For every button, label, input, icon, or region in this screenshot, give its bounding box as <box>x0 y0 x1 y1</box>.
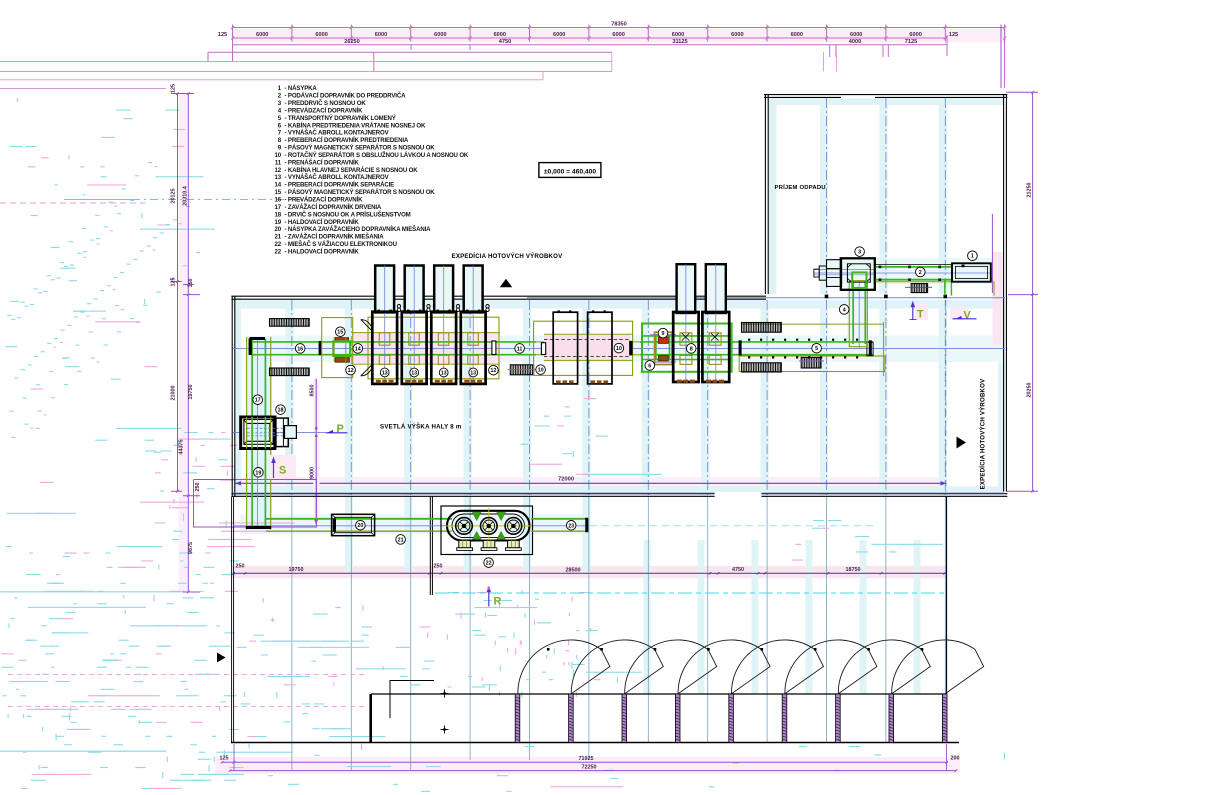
svg-text:8: 8 <box>690 346 693 352</box>
svg-text:22: 22 <box>275 248 282 255</box>
svg-text:150: 150 <box>188 279 194 288</box>
svg-text:6000: 6000 <box>909 32 921 38</box>
svg-text:4000: 4000 <box>849 39 861 45</box>
svg-text:125: 125 <box>218 32 227 38</box>
svg-text:28500: 28500 <box>566 568 581 574</box>
svg-text:31125: 31125 <box>672 39 687 45</box>
svg-text:13: 13 <box>411 371 417 377</box>
svg-text:- DRVIČ S NOSNOU OK A PRÍSLUŠE: - DRVIČ S NOSNOU OK A PRÍSLUŠENSTVOM <box>285 210 411 218</box>
svg-text:4750: 4750 <box>499 39 511 45</box>
svg-text:20125: 20125 <box>171 189 177 204</box>
svg-text:- KABÍNA PREDTRIEDENIA VRÁTANE: - KABÍNA PREDTRIEDENIA VRÁTANE NOSNEJ OK <box>285 121 426 129</box>
svg-text:20: 20 <box>357 523 363 529</box>
svg-text:- NÁSYPKA ZAVÁŽACIEHO DOPRAVNÍ: - NÁSYPKA ZAVÁŽACIEHO DOPRAVNÍKA MIEŠANI… <box>285 225 432 233</box>
svg-text:SVETLÁ VÝŠKA HALY 8 m: SVETLÁ VÝŠKA HALY 8 m <box>380 423 462 431</box>
svg-text:13: 13 <box>275 174 282 181</box>
svg-text:10: 10 <box>275 152 282 159</box>
svg-text:6000: 6000 <box>553 32 565 38</box>
svg-text:18750: 18750 <box>846 567 861 573</box>
svg-text:20310.4: 20310.4 <box>182 186 188 206</box>
svg-text:6000: 6000 <box>731 32 743 38</box>
svg-text:4: 4 <box>843 307 846 313</box>
svg-text:72000: 72000 <box>558 477 574 483</box>
svg-text:7125: 7125 <box>905 39 917 45</box>
svg-text:3: 3 <box>858 250 861 256</box>
svg-text:200: 200 <box>951 756 960 762</box>
svg-text:17: 17 <box>255 398 261 404</box>
svg-text:5: 5 <box>815 346 818 352</box>
svg-text:78350: 78350 <box>611 22 627 28</box>
svg-text:19: 19 <box>255 470 261 476</box>
svg-text:10: 10 <box>538 368 544 374</box>
svg-text:11: 11 <box>517 346 523 352</box>
svg-text:26250: 26250 <box>344 39 360 45</box>
svg-text:- ZAVÁŽACÍ DOPRAVNÍK MIEŠANIA: - ZAVÁŽACÍ DOPRAVNÍK MIEŠANIA <box>285 233 385 241</box>
svg-text:- HALDOVACÍ DOPRAVNÍK: - HALDOVACÍ DOPRAVNÍK <box>285 218 360 226</box>
svg-text:- PREBERACÍ DOPRAVNÍK PREDTRIE: - PREBERACÍ DOPRAVNÍK PREDTRIEDENIA <box>285 136 409 144</box>
svg-text:- HALDOVACÍ DOPRAVNÍK: - HALDOVACÍ DOPRAVNÍK <box>285 247 360 255</box>
svg-text:21250: 21250 <box>1027 183 1033 198</box>
svg-text:6000: 6000 <box>494 32 506 38</box>
svg-text:20250: 20250 <box>1027 383 1033 398</box>
svg-text:21: 21 <box>275 234 282 241</box>
svg-text:9: 9 <box>662 331 665 337</box>
svg-text:8500: 8500 <box>309 385 315 397</box>
svg-text:- PÁSOVÝ MAGNETICKÝ SEPARÁTOR: - PÁSOVÝ MAGNETICKÝ SEPARÁTOR S NOSNOU O… <box>285 189 436 196</box>
svg-text:19750: 19750 <box>289 567 304 573</box>
svg-text:11: 11 <box>275 159 282 166</box>
svg-text:6000: 6000 <box>434 32 446 38</box>
svg-text:16: 16 <box>297 346 303 352</box>
svg-text:6000: 6000 <box>850 32 862 38</box>
svg-text:R: R <box>494 596 502 608</box>
svg-text:13: 13 <box>470 371 476 377</box>
svg-text:2: 2 <box>919 270 922 276</box>
svg-text:16: 16 <box>275 197 282 204</box>
svg-text:6000: 6000 <box>791 32 803 38</box>
svg-text:6000: 6000 <box>612 32 624 38</box>
svg-text:125: 125 <box>949 32 958 38</box>
svg-text:44375: 44375 <box>179 440 185 455</box>
svg-text:23: 23 <box>568 523 574 529</box>
svg-text:20: 20 <box>275 226 282 233</box>
svg-text:14: 14 <box>355 346 361 352</box>
svg-text:- PRENÁŠACÍ DOPRAVNÍK: - PRENÁŠACÍ DOPRAVNÍK <box>285 158 360 166</box>
svg-text:S: S <box>279 465 286 477</box>
svg-text:21000: 21000 <box>171 386 177 401</box>
svg-text:18: 18 <box>278 408 284 414</box>
svg-text:6000: 6000 <box>375 32 387 38</box>
svg-text:6: 6 <box>648 363 651 369</box>
svg-text:6000: 6000 <box>256 32 268 38</box>
svg-text:13: 13 <box>382 371 388 377</box>
svg-text:250: 250 <box>195 483 201 492</box>
svg-text:- PÁSOVÝ MAGNETICKÝ SEPARÁTOR: - PÁSOVÝ MAGNETICKÝ SEPARÁTOR S NOSNOU O… <box>285 145 436 152</box>
svg-text:125: 125 <box>171 278 177 287</box>
svg-text:12: 12 <box>490 368 496 374</box>
svg-text:- ZAVÁŽACÍ DOPRAVNÍK DRVENIA: - ZAVÁŽACÍ DOPRAVNÍK DRVENIA <box>285 203 382 211</box>
svg-text:EXPEDÍCIA HOTOVÝCH VÝROBKOV: EXPEDÍCIA HOTOVÝCH VÝROBKOV <box>979 378 987 489</box>
svg-text:250: 250 <box>236 564 245 570</box>
svg-text:T: T <box>917 309 924 321</box>
svg-text:19750: 19750 <box>188 385 194 400</box>
svg-text:12: 12 <box>348 368 354 374</box>
svg-text:- VYNÁŠAČ ABROLL KONTAJNEROV: - VYNÁŠAČ ABROLL KONTAJNEROV <box>285 173 390 181</box>
svg-text:- NÁSYPKA: - NÁSYPKA <box>285 85 318 92</box>
svg-text:15: 15 <box>275 189 282 196</box>
svg-text:V: V <box>964 310 972 322</box>
svg-text:- TRANSPORTNÝ DOPRAVNÍK LOMENÝ: - TRANSPORTNÝ DOPRAVNÍK LOMENÝ <box>285 114 396 122</box>
svg-text:- PREVÁDZACÍ DOPRAVNÍK: - PREVÁDZACÍ DOPRAVNÍK <box>285 196 364 204</box>
svg-text:- ROTAČNÝ SEPARÁTOR S OBSLUŽNO: - ROTAČNÝ SEPARÁTOR S OBSLUŽNOU LÁVKOU A… <box>285 151 469 159</box>
svg-text:PRÍJEM ODPADU: PRÍJEM ODPADU <box>775 183 826 191</box>
svg-text:71925: 71925 <box>579 756 594 762</box>
svg-text:22: 22 <box>275 241 282 248</box>
svg-text:6000: 6000 <box>672 32 684 38</box>
svg-text:1: 1 <box>971 254 974 260</box>
svg-text:21: 21 <box>398 537 404 543</box>
svg-text:125: 125 <box>220 756 229 762</box>
svg-text:9000: 9000 <box>309 467 315 479</box>
svg-text:- PREDDRVIČ S NOSNOU OK: - PREDDRVIČ S NOSNOU OK <box>285 100 367 107</box>
svg-text:250: 250 <box>434 564 443 570</box>
svg-text:4750: 4750 <box>732 567 744 573</box>
svg-text:10: 10 <box>616 346 622 352</box>
svg-text:125: 125 <box>171 84 177 93</box>
svg-text:- PODÁVACÍ DOPRAVNÍK DO PREDDR: - PODÁVACÍ DOPRAVNÍK DO PREDDRVIČA <box>285 92 407 100</box>
svg-text:72250: 72250 <box>582 764 597 770</box>
svg-text:- PREBERACÍ DOPRAVNÍK SEPARÁCI: - PREBERACÍ DOPRAVNÍK SEPARÁCIE <box>285 181 395 189</box>
svg-text:6000: 6000 <box>315 32 327 38</box>
svg-text:EXPEDÍCIA HOTOVÝCH VÝROBKOV: EXPEDÍCIA HOTOVÝCH VÝROBKOV <box>452 252 563 260</box>
svg-text:12: 12 <box>275 167 282 174</box>
svg-text:18: 18 <box>275 211 282 218</box>
svg-text:22: 22 <box>486 561 492 567</box>
svg-text:13: 13 <box>441 371 447 377</box>
svg-text:- VYNÁŠAČ ABROLL KONTAJNEROV: - VYNÁŠAČ ABROLL KONTAJNEROV <box>285 129 390 137</box>
svg-text:±0,000 = 460,400: ±0,000 = 460,400 <box>544 168 596 175</box>
svg-text:14: 14 <box>275 182 282 189</box>
svg-text:- MIEŠAČ S VÁŽIACOU ELEKTRONIK: - MIEŠAČ S VÁŽIACOU ELEKTRONIKOU <box>285 240 398 248</box>
svg-text:15: 15 <box>337 330 343 336</box>
svg-text:9875: 9875 <box>188 542 194 554</box>
svg-text:- PREVÁDZACÍ DOPRAVNÍK: - PREVÁDZACÍ DOPRAVNÍK <box>285 106 364 114</box>
svg-text:- KABÍNA HLAVNEJ SEPARÁCIE S N: - KABÍNA HLAVNEJ SEPARÁCIE S NOSNOU OK <box>285 166 419 174</box>
svg-text:17: 17 <box>275 204 282 211</box>
svg-text:19: 19 <box>275 219 282 226</box>
